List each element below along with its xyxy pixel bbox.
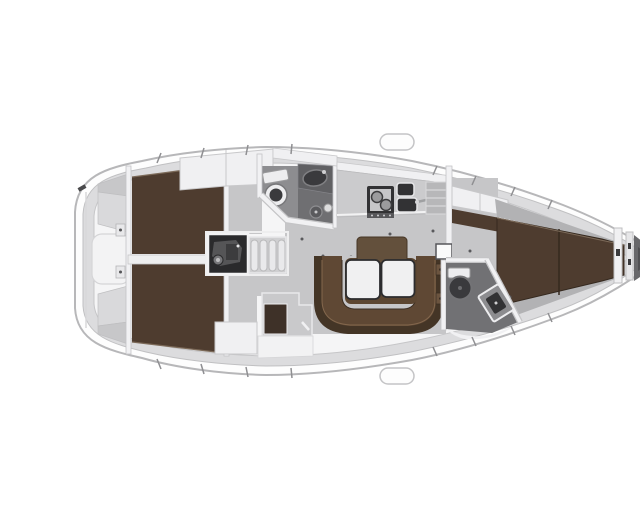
hand-shower	[324, 204, 332, 212]
bulkhead-fitting	[628, 243, 631, 249]
companionway-steps	[249, 237, 286, 273]
floor-fitting-dot	[301, 238, 304, 241]
tabletop-left	[346, 260, 380, 299]
shower-drain-cap	[315, 211, 318, 214]
floor-fitting-dot	[469, 250, 472, 253]
stanchion-tick	[291, 144, 292, 154]
stove-knob	[383, 215, 385, 217]
chainplate-notch-port	[380, 368, 414, 384]
stove-burner-front	[372, 192, 383, 203]
stern-deck	[78, 174, 130, 344]
stove-knob	[371, 215, 373, 217]
bulkhead-fitting	[616, 249, 620, 256]
floor-plan-canvas	[40, 16, 640, 496]
sink-faucet-base	[415, 200, 419, 204]
wardrobe-port	[215, 322, 257, 354]
stove-knob	[377, 215, 379, 217]
aft-berth-port	[132, 264, 224, 353]
step-tread	[269, 240, 276, 271]
bow	[614, 228, 640, 283]
step-tread	[260, 240, 267, 271]
aft-toilet-bowl	[270, 189, 283, 202]
aft-head-faucet	[322, 170, 326, 174]
nav-cabinet-front	[258, 336, 313, 358]
engine-and-companionway	[206, 232, 288, 275]
floor-fitting-dot	[389, 233, 392, 236]
berth-latch-upper-pin	[119, 229, 122, 232]
step-tread	[251, 240, 258, 271]
step-tread	[278, 240, 285, 271]
chain-locker-bulkhead-fwd	[626, 232, 633, 280]
forward-head-left-wall	[441, 260, 446, 330]
stove-burner-rear	[381, 200, 392, 211]
yacht-floor-plan	[40, 16, 640, 496]
bulkhead-fitting	[628, 259, 631, 265]
nav-cabinet-wood-panel	[264, 304, 287, 334]
sink-basin-inboard	[397, 198, 417, 212]
forward-toilet-drain	[458, 286, 462, 290]
stove-knob	[389, 215, 391, 217]
engine-pulley-hub	[216, 258, 220, 262]
tabletop-right	[382, 260, 415, 297]
berth-latch-lower-pin	[119, 271, 122, 274]
bulkhead-wall	[446, 166, 452, 248]
aft-head-right-wall	[333, 164, 337, 228]
chainplate-notch-starboard	[380, 134, 414, 150]
sink-basin-outboard	[397, 183, 414, 196]
engine-cap	[237, 245, 240, 248]
floor-fitting-dot	[432, 230, 435, 233]
mast-post	[436, 244, 452, 259]
aft-head-left-wall	[257, 154, 262, 198]
engine-head	[226, 244, 238, 260]
stanchion-tick	[291, 368, 292, 378]
